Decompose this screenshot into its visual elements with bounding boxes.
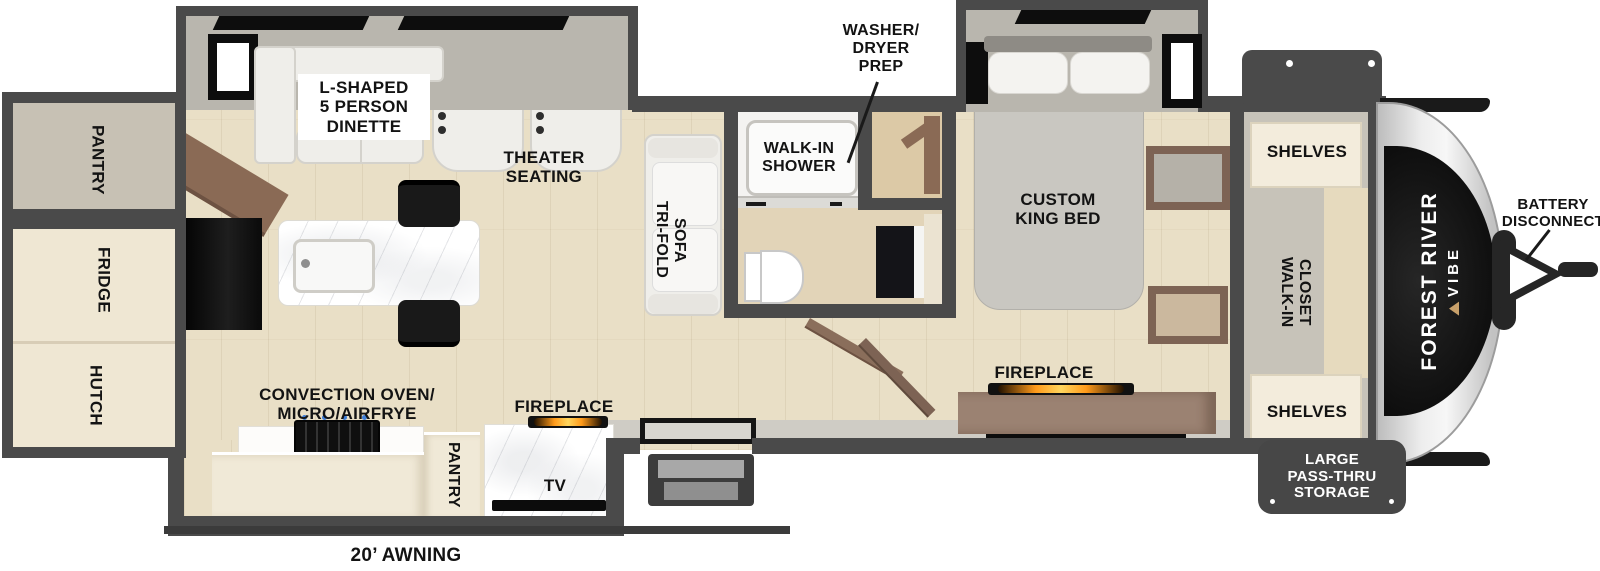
- bed-headboard: [984, 36, 1152, 52]
- brand-logo: FOREST RIVER VIBE: [1418, 191, 1462, 370]
- kitchen-pantry-label: PANTRY: [438, 436, 468, 514]
- awning-line: [164, 526, 790, 534]
- pass-thru-storage-label: LARGE PASS-THRU STORAGE: [1258, 440, 1406, 514]
- rv-floorplan: L-SHAPED 5 PERSON DINETTE THEATER SEATIN…: [0, 0, 1600, 571]
- battery-leader-line: [1525, 229, 1551, 261]
- awning-label: 20’ AWNING: [330, 544, 482, 568]
- sofa-arm: [648, 294, 718, 314]
- bedroom-fireplace-flame: [998, 385, 1124, 393]
- step-tread: [658, 460, 744, 478]
- slide-window: [398, 16, 570, 30]
- kitchen-lower-cabinet: [212, 452, 424, 519]
- cabinet-divider: [13, 341, 175, 344]
- entry-steps: [648, 454, 754, 506]
- bath-bedroom-wall: [942, 106, 956, 318]
- brand-line1: FOREST RIVER: [1418, 191, 1442, 370]
- living-fireplace-insert: [528, 416, 608, 428]
- walk-in-closet-label: WALK-IN CLOSET: [1272, 224, 1318, 360]
- washer-dryer-prep-label: WASHER/ DRYER PREP: [820, 16, 942, 82]
- brand-line2-row: VIBE: [1445, 191, 1462, 370]
- refrigerator-appliance: [186, 218, 262, 330]
- cupholder: [438, 112, 446, 120]
- bath-cabinet: [924, 214, 942, 306]
- slide-side-window: [1162, 34, 1202, 108]
- battery-disconnect-label: BATTERY DISCONNECT: [1504, 196, 1600, 232]
- living-fireplace-label: FIREPLACE: [500, 398, 628, 416]
- tri-fold-sofa-label: TRI-FOLD SOFA: [648, 190, 692, 290]
- toilet-bowl: [760, 250, 804, 304]
- bath-sink: [914, 226, 924, 298]
- dinette-bench-left: [254, 46, 296, 164]
- shelves-top-label: SHELVES: [1252, 140, 1362, 164]
- tv-label: TV: [530, 476, 580, 496]
- bath-vanity: [876, 226, 914, 298]
- shelves-bottom-label: SHELVES: [1252, 400, 1362, 424]
- custom-king-bed-label: CUSTOM KING BED: [980, 188, 1136, 230]
- washer-bottom-wall: [858, 198, 956, 210]
- sofa-arm: [648, 138, 718, 158]
- closet-wood-strip: [1324, 188, 1370, 378]
- bedroom-wardrobe: [1148, 286, 1228, 344]
- pass-thru-storage-badge: LARGE PASS-THRU STORAGE: [1258, 440, 1406, 514]
- fridge-label: FRIDGE: [86, 238, 122, 322]
- living-fireplace-flame: [534, 418, 602, 426]
- theater-seating-label: THEATER SEATING: [479, 147, 609, 187]
- cupholder: [536, 112, 544, 120]
- bedroom-wardrobe: [1146, 146, 1230, 210]
- hitch-coupler-bar: [1558, 262, 1598, 277]
- walk-in-shower-label: WALK-IN SHOWER: [736, 136, 862, 180]
- bedroom-closet-wall: [1230, 106, 1244, 440]
- bedroom-fireplace-label: FIREPLACE: [982, 364, 1106, 382]
- bedroom-slideout: [956, 0, 1208, 112]
- compartment-latch: [1368, 60, 1375, 67]
- bed-pillow: [988, 52, 1068, 94]
- shower-handle: [746, 202, 766, 206]
- cupholder: [536, 126, 544, 134]
- convection-label: CONVECTION OVEN/ MICRO/AIRFRYE: [248, 384, 446, 424]
- slide-window: [213, 16, 370, 30]
- dinette-label: L-SHAPED 5 PERSON DINETTE: [298, 74, 430, 140]
- kitchen-island: [278, 220, 480, 306]
- bed-pillow: [1070, 52, 1150, 94]
- compartment-latch: [1286, 60, 1293, 67]
- slide-side-window: [208, 34, 258, 100]
- island-stool-top: [398, 180, 460, 227]
- sink-faucet: [301, 259, 310, 268]
- bedroom-fireplace-insert: [988, 383, 1134, 395]
- rear-pantry-label: PANTRY: [80, 118, 116, 202]
- bedroom-dresser: [958, 392, 1216, 434]
- hutch-label: HUTCH: [78, 353, 114, 437]
- cupholder: [438, 126, 446, 134]
- shower-handle: [830, 202, 842, 206]
- vibe-chevron-icon: [1449, 302, 1459, 316]
- entry-mat: [640, 418, 756, 444]
- slide-window: [1015, 10, 1152, 24]
- top-wall: [632, 96, 962, 112]
- propane-compartment: [1242, 50, 1382, 108]
- step-tread: [664, 482, 738, 500]
- island-stool-bottom: [398, 300, 460, 347]
- bath-bottom-wall: [724, 304, 956, 318]
- brand-line2: VIBE: [1445, 246, 1462, 297]
- living-tv: [492, 500, 606, 511]
- slide-side-window: [966, 42, 988, 104]
